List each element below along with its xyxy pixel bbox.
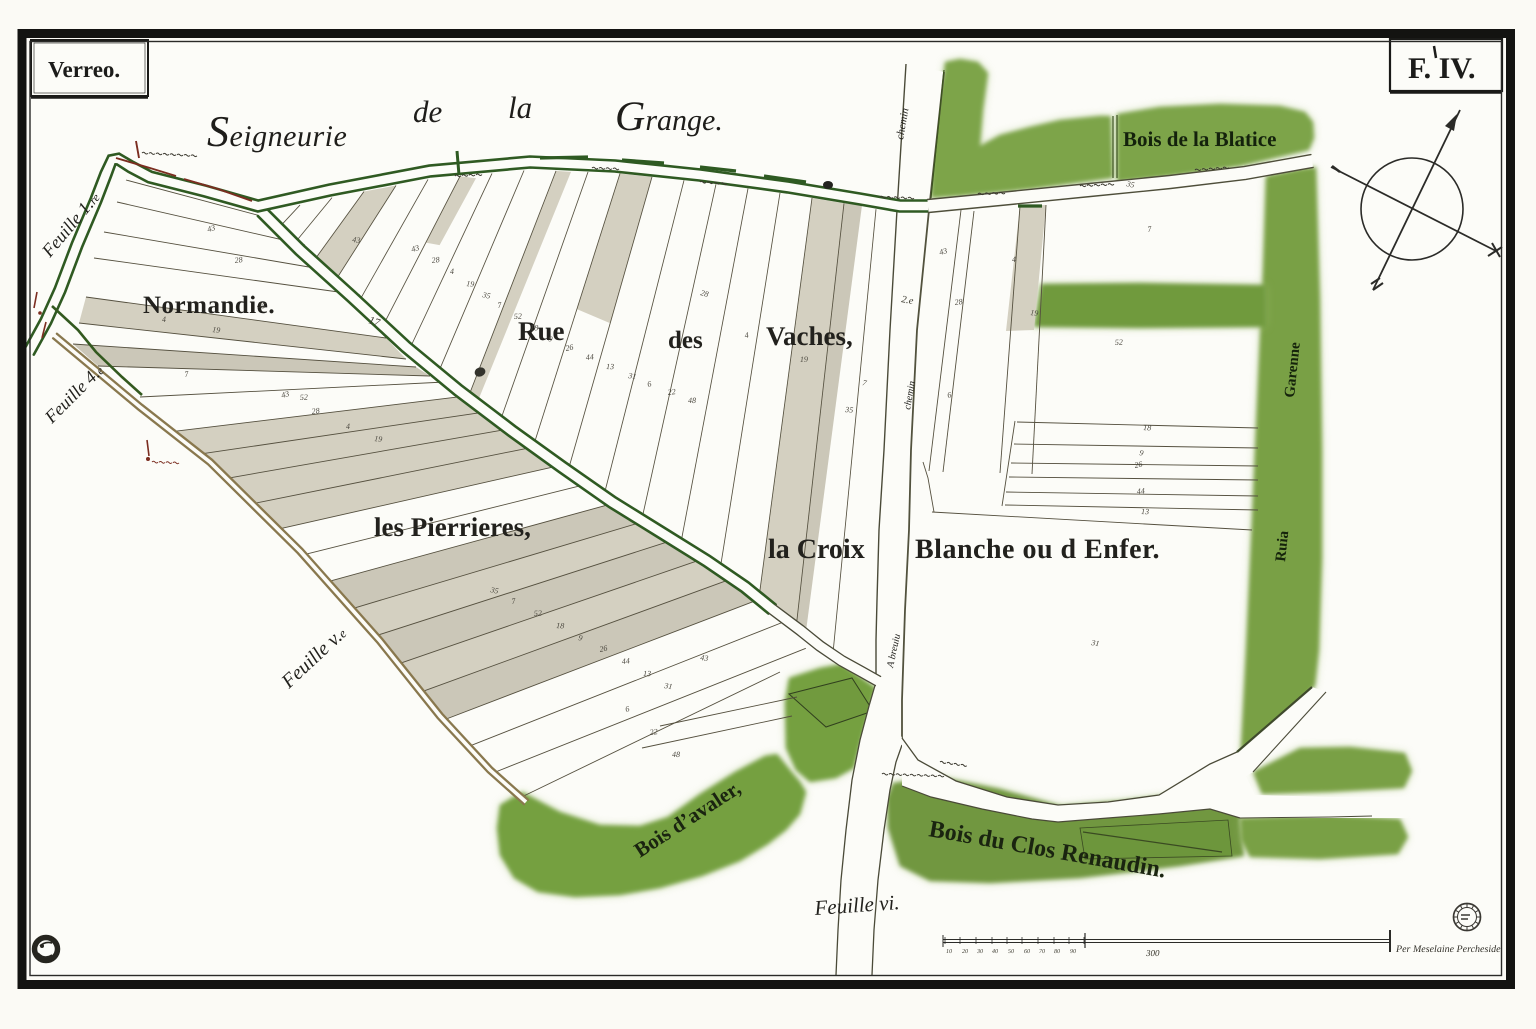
svg-text:la Croix: la Croix (768, 534, 865, 565)
svg-text:F. IV.: F. IV. (1408, 52, 1476, 85)
svg-text:90: 90 (1070, 949, 1076, 955)
svg-text:35: 35 (844, 405, 854, 415)
svg-text:4: 4 (450, 267, 454, 276)
svg-text:28: 28 (234, 255, 243, 265)
svg-text:28: 28 (311, 406, 320, 416)
svg-text:Vaches,: Vaches, (766, 321, 853, 351)
svg-text:31: 31 (1090, 638, 1100, 648)
svg-text:la: la (508, 90, 532, 125)
svg-text:43: 43 (700, 653, 709, 663)
svg-text:19: 19 (1030, 308, 1039, 318)
svg-text:30: 30 (976, 949, 983, 955)
svg-text:10: 10 (946, 949, 952, 955)
svg-text:Bois de la Blatice: Bois de la Blatice (1123, 127, 1276, 151)
svg-text:52: 52 (1115, 338, 1123, 347)
svg-text:20: 20 (962, 949, 968, 955)
svg-text:19: 19 (212, 325, 221, 335)
svg-text:22: 22 (649, 727, 658, 737)
svg-text:13: 13 (606, 362, 614, 371)
svg-text:de: de (413, 94, 443, 129)
svg-text:52: 52 (514, 312, 522, 321)
svg-text:48: 48 (688, 396, 696, 405)
svg-text:52: 52 (534, 609, 542, 618)
svg-text:60: 60 (1024, 949, 1030, 955)
svg-text:4: 4 (1012, 255, 1016, 264)
svg-text:44: 44 (585, 352, 594, 362)
svg-text:18: 18 (556, 621, 565, 631)
svg-text:19: 19 (466, 279, 475, 289)
svg-text:31: 31 (627, 371, 637, 381)
svg-text:19: 19 (374, 434, 383, 444)
svg-text:31: 31 (663, 681, 673, 691)
svg-text:Verreo.: Verreo. (48, 57, 120, 82)
svg-text:Per Meselaine Percheside: Per Meselaine Percheside (1395, 944, 1501, 955)
svg-text:48: 48 (672, 750, 680, 759)
svg-text:43: 43 (352, 235, 361, 245)
svg-text:des: des (668, 327, 703, 354)
svg-text:40: 40 (992, 949, 998, 955)
svg-text:52: 52 (300, 393, 308, 402)
svg-text:4: 4 (162, 315, 166, 324)
svg-text:18: 18 (530, 323, 539, 333)
svg-text:4: 4 (346, 422, 350, 431)
svg-text:2.e: 2.e (900, 294, 914, 307)
svg-text:50: 50 (1008, 949, 1014, 955)
svg-text:les Pierrieres,: les Pierrieres, (374, 512, 531, 542)
svg-text:28: 28 (954, 297, 963, 307)
svg-text:Rue: Rue (518, 316, 565, 346)
svg-text:300: 300 (1145, 948, 1160, 958)
svg-text:44: 44 (1136, 486, 1145, 496)
svg-text:19: 19 (800, 355, 808, 364)
svg-text:13: 13 (643, 669, 651, 678)
svg-text:44: 44 (621, 656, 630, 666)
svg-text:Ruia: Ruia (1273, 530, 1292, 563)
svg-text:28: 28 (431, 255, 440, 265)
svg-text:Blanche ou d Enfer.: Blanche ou d Enfer. (915, 534, 1160, 565)
svg-text:80: 80 (1054, 949, 1060, 955)
svg-text:22: 22 (667, 387, 676, 397)
svg-text:13: 13 (1141, 507, 1149, 516)
svg-text:70: 70 (1039, 949, 1045, 955)
svg-text:18: 18 (1143, 423, 1152, 433)
